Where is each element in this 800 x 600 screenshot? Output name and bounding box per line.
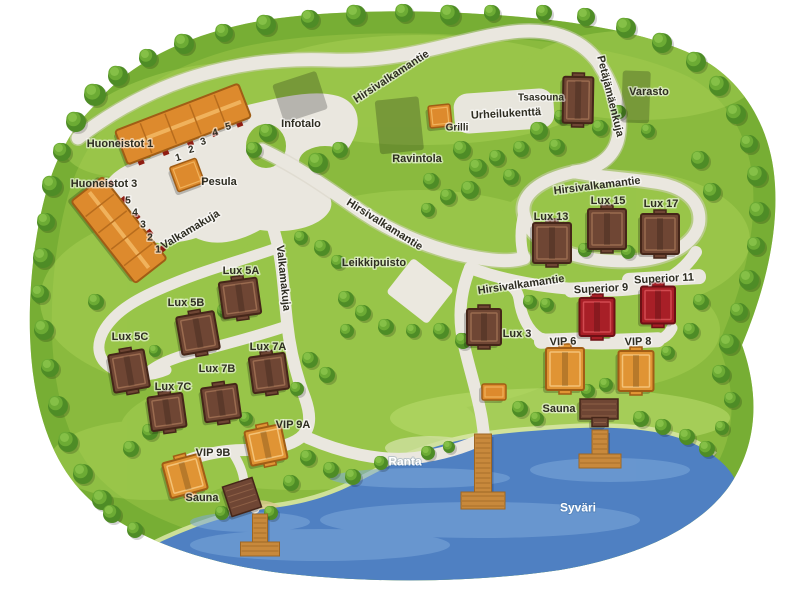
lux-7c-label: Lux 7C: [155, 381, 192, 393]
h3-unit-1: 1: [155, 245, 161, 256]
map-canvas: Huoneistot 1Huoneistot 3PesulaInfotaloRa…: [0, 0, 800, 600]
lux-15-label: Lux 15: [591, 195, 626, 207]
ravintola-building: [375, 96, 424, 154]
h3-unit-3: 3: [140, 220, 146, 231]
sauna-left-label: Sauna: [185, 492, 219, 504]
resort-map: Huoneistot 1Huoneistot 3PesulaInfotaloRa…: [0, 0, 800, 600]
sauna-right-label: Sauna: [542, 403, 576, 415]
tree-icon: [66, 112, 88, 134]
lux-5a-label: Lux 5A: [223, 265, 260, 277]
infotalo-label: Infotalo: [281, 118, 321, 130]
lux-17-label: Lux 17: [644, 198, 679, 210]
grilli-label: Grilli: [446, 123, 469, 134]
vip-9a-label: VIP 9A: [276, 419, 311, 431]
ravintola-label: Ravintola: [392, 153, 442, 165]
lux-13-building: [530, 219, 571, 267]
lux-13-label: Lux 13: [534, 211, 569, 223]
lux-7b-label: Lux 7B: [199, 363, 236, 375]
shore-hut: [479, 384, 506, 403]
lux-15-building: [585, 205, 626, 253]
leikkipuisto-label: Leikkipuisto: [342, 257, 406, 269]
lux-7a-label: Lux 7A: [250, 341, 287, 353]
tree-icon: [84, 84, 108, 108]
ranta-label: Ranta: [388, 454, 422, 468]
vip-6-label: VIP 6: [549, 335, 576, 348]
tsasouna-building: [560, 73, 594, 128]
h3-unit-5: 5: [125, 196, 131, 207]
lux-17-building: [638, 210, 679, 258]
vip-8-building: [616, 347, 654, 395]
varasto-label: Varasto: [629, 86, 669, 98]
huoneistot-1-label: Huoneistot 1: [87, 138, 154, 150]
lux-3-label: Lux 3: [503, 328, 532, 340]
vip-9b-label: VIP 9B: [196, 447, 231, 459]
tsasouna-label: Tsasouna: [518, 93, 564, 104]
superior-11-building: [638, 283, 675, 328]
huoneistot-3-label: Huoneistot 3: [71, 178, 138, 190]
h3-unit-2: 2: [147, 233, 153, 244]
lux-3-building: [464, 305, 501, 349]
lux-5b-label: Lux 5B: [168, 297, 205, 309]
h3-unit-4: 4: [132, 208, 138, 219]
superior-9-building: [577, 294, 615, 340]
syvari-label: Syväri: [560, 500, 596, 514]
vip-8-label: VIP 8: [624, 335, 651, 348]
vip-6-building: [543, 344, 584, 394]
pesula-label: Pesula: [201, 176, 237, 188]
tree-icon: [108, 66, 130, 88]
lux-5c-label: Lux 5C: [112, 331, 149, 343]
